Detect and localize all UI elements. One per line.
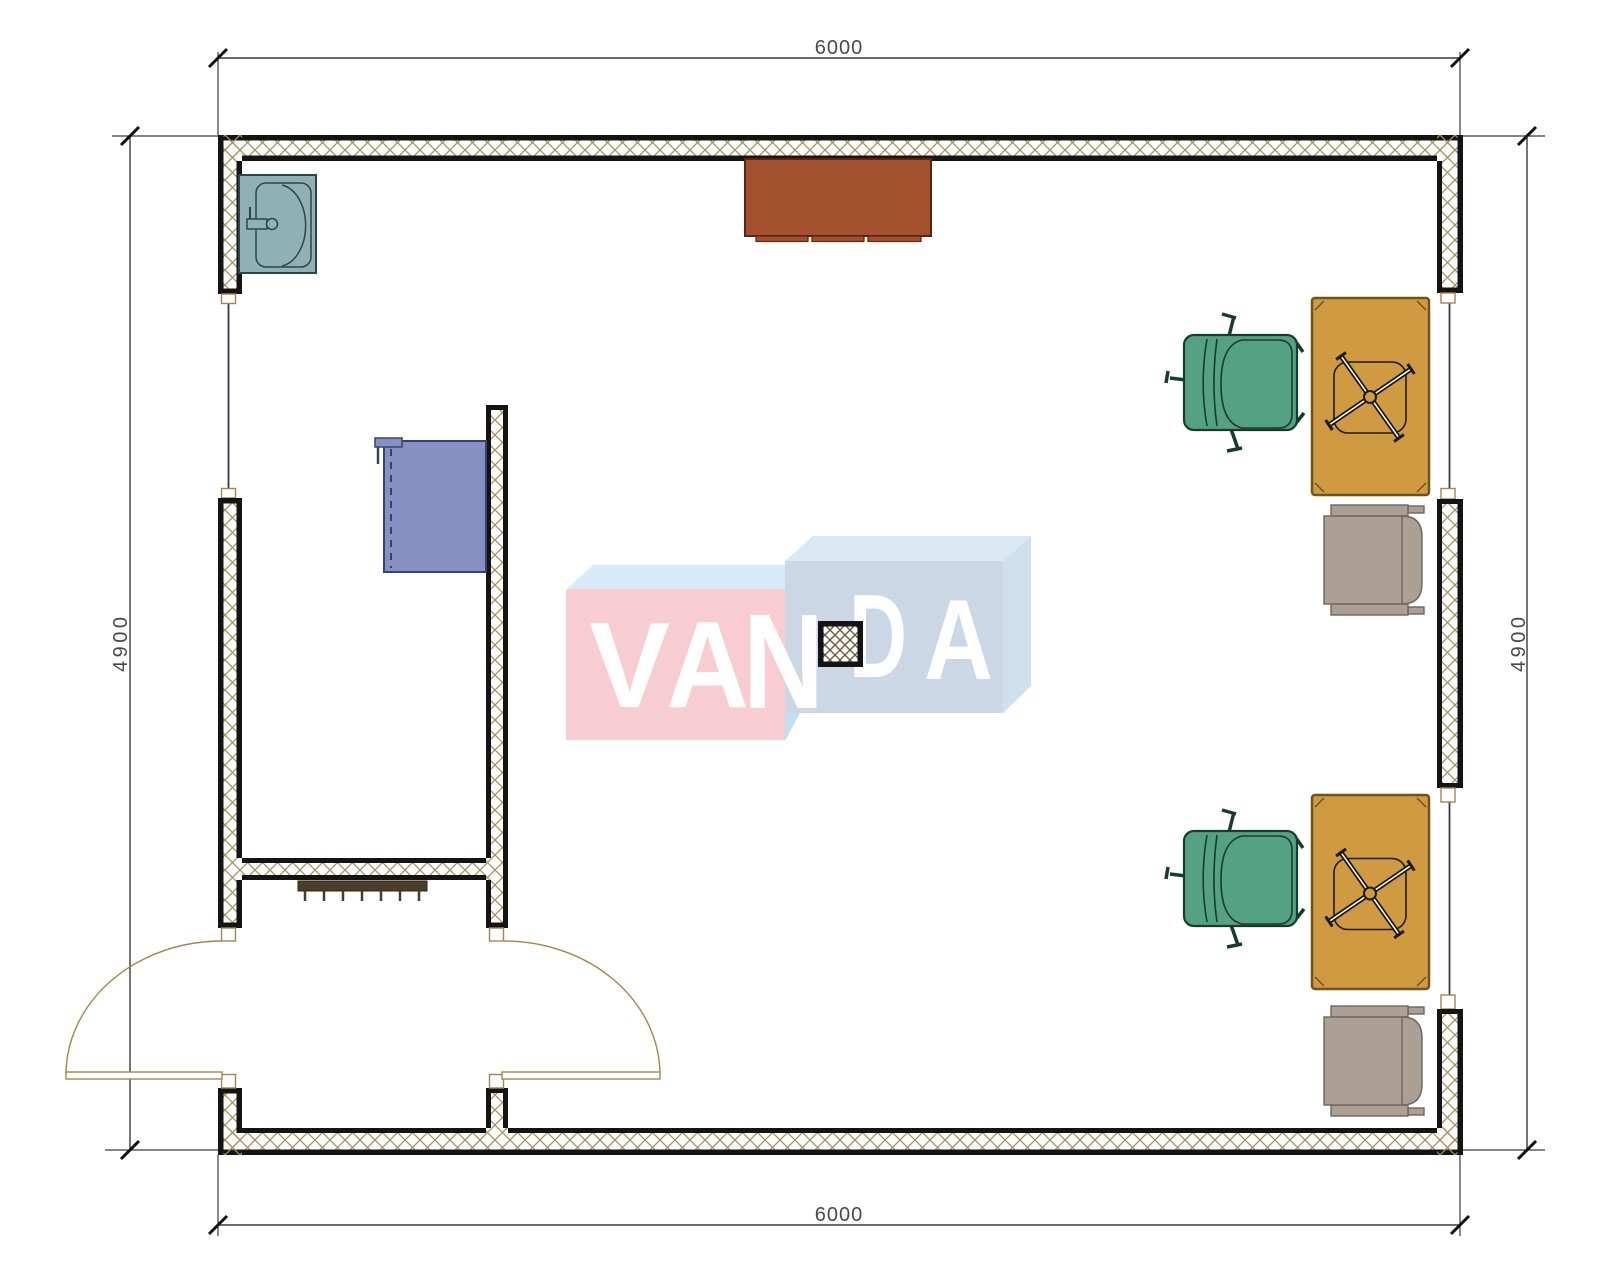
svg-text:V: V [589,597,670,733]
svg-text:4900: 4900 [1508,614,1530,673]
svg-text:6000: 6000 [815,37,864,59]
svg-text:6000: 6000 [815,1204,864,1226]
svg-text:A: A [666,597,749,734]
svg-text:4900: 4900 [110,614,132,673]
svg-text:A: A [924,577,993,704]
svg-text:N: N [743,586,824,737]
